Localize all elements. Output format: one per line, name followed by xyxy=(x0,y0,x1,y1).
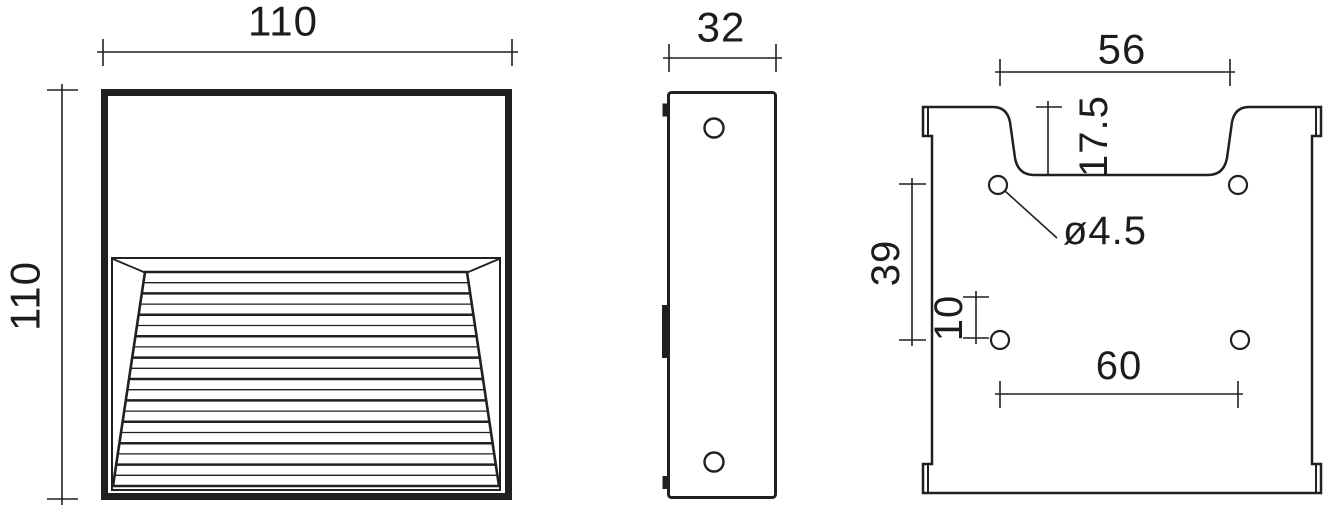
hole-diameter-callout: ø4.5 xyxy=(1005,191,1147,253)
mounting-hole-top-right xyxy=(1229,176,1247,194)
slot-width-dimension: 56 xyxy=(995,26,1235,87)
technical-drawing-sheet: 110 110 32 xyxy=(0,0,1331,515)
slot-depth-dimension: 17.5 xyxy=(1036,95,1116,177)
side-depth-dimension: 32 xyxy=(663,4,782,73)
dimension-drawing: 110 110 32 xyxy=(0,0,1331,515)
hole-column-spacing-dimension: 60 xyxy=(995,344,1243,408)
back-plate-outline xyxy=(923,107,1321,493)
hole-diameter-label: ø4.5 xyxy=(1063,209,1147,253)
side-hole-top xyxy=(705,119,724,138)
slot-width-label: 56 xyxy=(1098,26,1147,73)
mounting-hole-bottom-right xyxy=(1231,331,1249,349)
mounting-hole-bottom-left xyxy=(991,331,1009,349)
front-width-label: 110 xyxy=(248,0,318,45)
slot-depth-label: 17.5 xyxy=(1072,95,1116,177)
row-center-offset-dimension: 10 xyxy=(927,291,989,344)
side-depth-label: 32 xyxy=(697,4,746,51)
side-clip-top xyxy=(663,104,669,117)
front-recess-diagonal-left xyxy=(113,259,146,273)
hole-row-spacing-label: 39 xyxy=(864,240,908,287)
leader-line xyxy=(1005,191,1057,238)
row-center-offset-label: 10 xyxy=(927,295,971,342)
side-view: 32 xyxy=(662,4,782,498)
front-height-label: 110 xyxy=(2,261,49,331)
hole-column-spacing-label: 60 xyxy=(1096,344,1143,388)
mounting-hole-top-left xyxy=(989,176,1007,194)
side-clip-bottom xyxy=(663,476,669,489)
front-height-dimension: 110 xyxy=(2,84,79,505)
front-view: 110 110 xyxy=(2,0,519,505)
side-hole-bottom xyxy=(705,453,724,472)
hole-row-spacing-dimension: 39 xyxy=(864,178,926,346)
side-housing-outline xyxy=(669,93,776,498)
front-louver-slats xyxy=(114,283,498,476)
front-width-dimension: 110 xyxy=(97,0,518,66)
front-recess-diagonal-right xyxy=(466,259,499,273)
back-view: 56 17.5 ø4.5 39 10 xyxy=(864,26,1321,494)
side-clip-middle xyxy=(662,305,669,358)
